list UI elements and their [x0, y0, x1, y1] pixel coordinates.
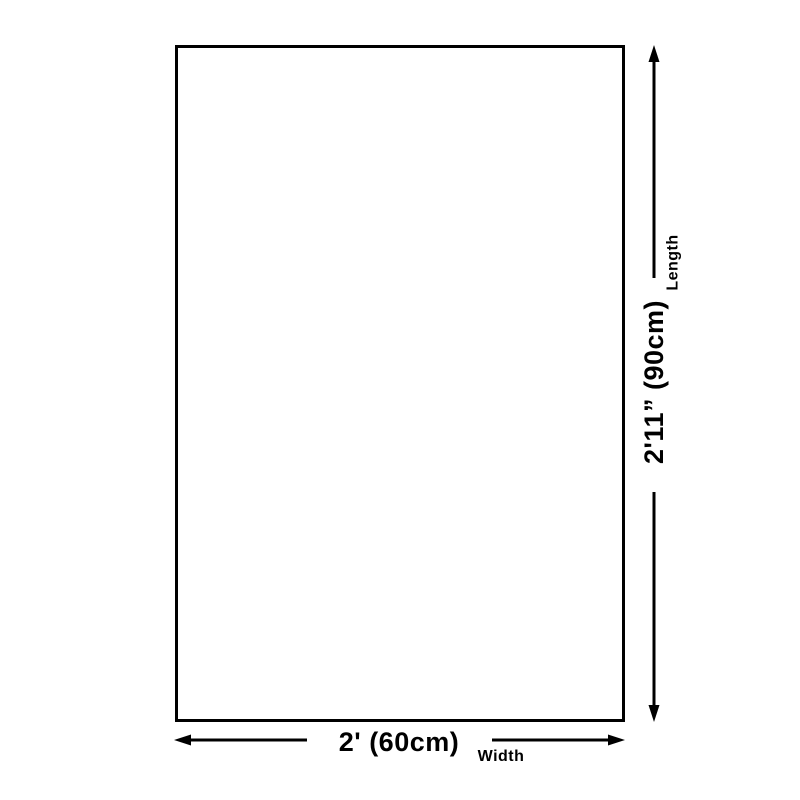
product-outline-rectangle [175, 45, 625, 722]
arrow-up-icon [649, 45, 660, 62]
arrow-right-icon [608, 735, 625, 746]
length-axis-label: Length [666, 203, 683, 323]
arrow-left-icon [174, 735, 191, 746]
width-axis-label: Width [441, 749, 561, 766]
arrow-down-icon [649, 705, 660, 722]
dimension-diagram: 2'11” (90cm) Length 2' (60cm) Width [0, 0, 800, 800]
